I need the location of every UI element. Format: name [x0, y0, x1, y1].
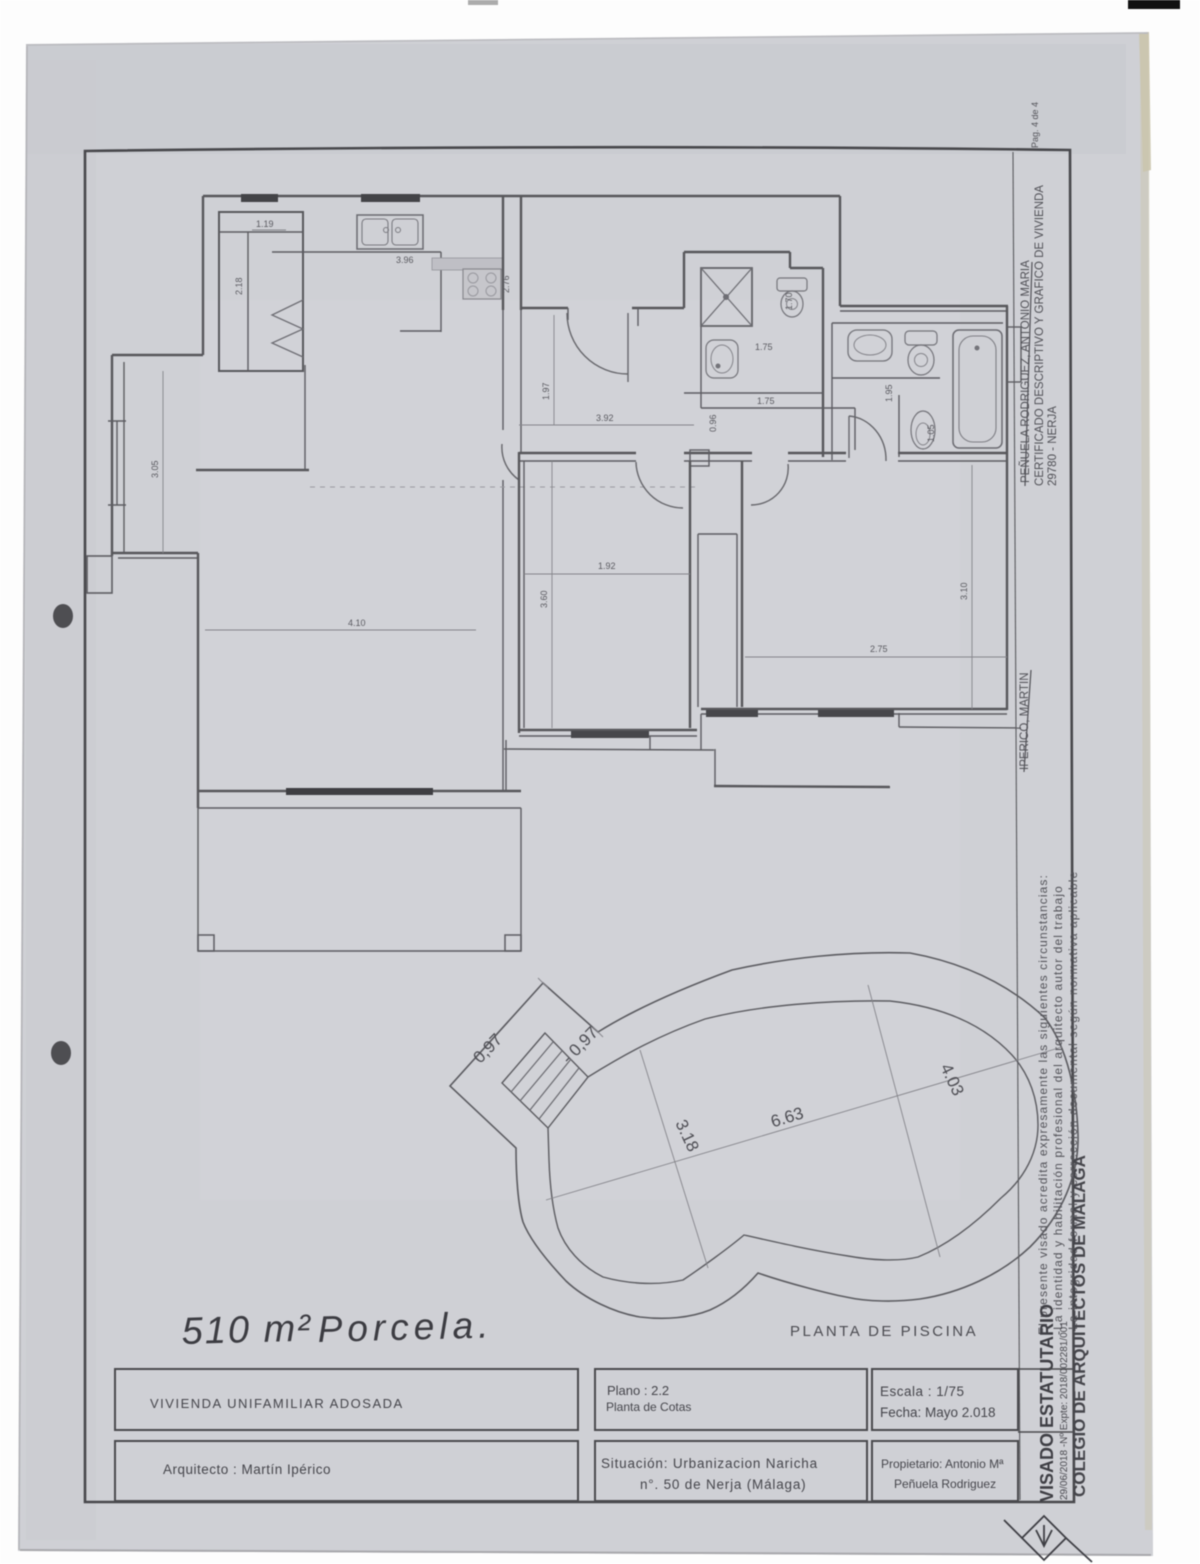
svg-text:Arquitecto : Martín Ipér: Arquitecto : Martín Ipérico — [163, 1462, 331, 1477]
svg-text:1.05: 1.05 — [926, 424, 936, 442]
svg-text:3.05: 3.05 — [150, 460, 160, 478]
svg-text:Escala : 1/75: Escala : 1/75 — [880, 1384, 965, 1399]
svg-text:1.95: 1.95 — [884, 384, 894, 402]
svg-text:29780 - NERJA: 29780 - NERJA — [1047, 406, 1059, 486]
svg-text:n°. 50 de Nerja (Málaga): n°. 50 de Nerja (Málaga) — [640, 1477, 806, 1492]
svg-text:1.75: 1.75 — [757, 396, 775, 406]
svg-text:Peñuela Rodriguez: Peñuela Rodriguez — [894, 1477, 996, 1491]
svg-text:CERTIFICADO DESCRIPTIVO Y GRAF: CERTIFICADO DESCRIPTIVO Y GRAFICO DE VIV… — [1034, 185, 1046, 486]
svg-text:3.60: 3.60 — [539, 590, 549, 608]
svg-text:VIVIENDA UNIFAMILIAR ADOSADA: VIVIENDA UNIFAMILIAR ADOSADA — [150, 1396, 404, 1411]
svg-text:3.92: 3.92 — [596, 413, 614, 423]
svg-text:Plano : 2.2: Plano : 2.2 — [607, 1383, 669, 1398]
svg-text:2.75: 2.75 — [870, 644, 888, 654]
svg-text:510 m²: 510 m² — [181, 1308, 312, 1353]
svg-text:El presente visado acredita ex: El presente visado acredita expresamente… — [1036, 874, 1050, 1335]
svg-text:PEÑUELA RODRIGUEZ, ANTONIO MAR: PEÑUELA RODRIGUEZ, ANTONIO MARIA — [1019, 260, 1032, 483]
svg-text:0.96: 0.96 — [708, 414, 718, 432]
svg-text:4.10: 4.10 — [348, 618, 366, 628]
svg-text:Fecha: Mayo 2.018: Fecha: Mayo 2.018 — [880, 1405, 996, 1420]
svg-text:2.18: 2.18 — [234, 277, 244, 295]
svg-text:Porcela.: Porcela. — [317, 1304, 494, 1350]
svg-text:Pag. 4 de 4: Pag. 4 de 4 — [1030, 102, 1040, 148]
svg-text:Propietario: Antonio Mª: Propietario: Antonio Mª — [881, 1457, 1004, 1471]
svg-text:2.76: 2.76 — [501, 275, 511, 293]
svg-text:-La identidad y habilitación p: -La identidad y habilitación profesional… — [1051, 885, 1065, 1335]
svg-text:1.92: 1.92 — [598, 561, 616, 571]
svg-text:Situación: Urbanizacion Nari: Situación: Urbanizacion Naricha — [601, 1456, 818, 1471]
svg-text:1.70: 1.70 — [784, 292, 794, 310]
svg-text:3.96: 3.96 — [396, 255, 414, 265]
svg-text:COLEGIO DE ARQUITECTOS DE MALA: COLEGIO DE ARQUITECTOS DE MALAGA — [1070, 1155, 1089, 1497]
svg-text:1.97: 1.97 — [541, 382, 551, 400]
svg-text:VISADO ESTATUTARIO: VISADO ESTATUTARIO — [1037, 1304, 1057, 1502]
svg-text:Planta de Cotas: Planta de Cotas — [606, 1400, 691, 1414]
svg-text:1.19: 1.19 — [256, 219, 274, 229]
svg-text:3.10: 3.10 — [959, 582, 969, 600]
svg-text:29/06/2018 -Nº Expte: 2018/002: 29/06/2018 -Nº Expte: 2018/002281/001 — [1059, 1321, 1070, 1500]
svg-text:PLANTA DE PISCINA: PLANTA DE PISCINA — [790, 1323, 978, 1340]
svg-text:1.75: 1.75 — [755, 342, 773, 352]
